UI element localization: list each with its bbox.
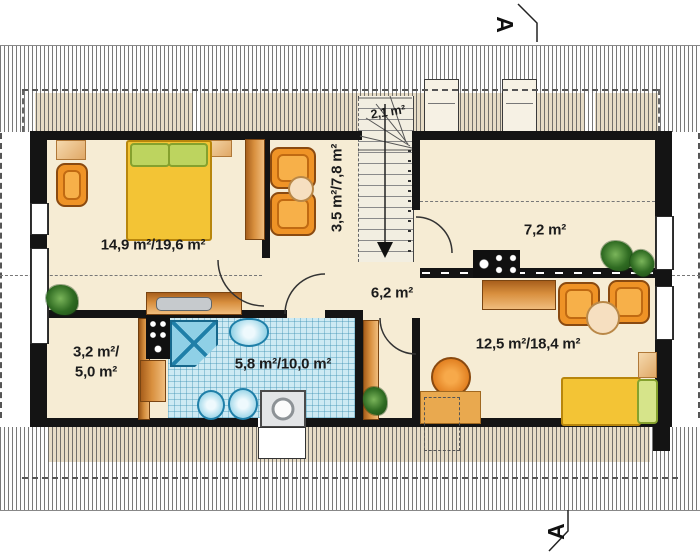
nightstand <box>638 352 657 378</box>
sideboard <box>482 280 556 310</box>
round-table <box>586 301 620 335</box>
section-marker-top: A <box>491 16 518 33</box>
pillow <box>168 143 208 167</box>
wardrobe <box>245 139 265 240</box>
roof-dashed-line-bottom <box>22 477 678 479</box>
window-right <box>655 216 674 270</box>
desk-under-eaves-dashed <box>424 397 460 451</box>
room-label-room2: 12,5 m²/18,4 m² <box>476 336 581 353</box>
stove-oven-icon <box>146 315 170 359</box>
side-table <box>288 176 314 202</box>
room-label-storage-line1: 3,2 m²/ <box>73 344 119 361</box>
wall-left <box>30 233 47 248</box>
room-label-storage-line2: 5,0 m² <box>75 363 117 380</box>
room-label-hall: 6,2 m² <box>371 285 413 302</box>
skylight-window <box>424 79 459 132</box>
toilet-icon <box>197 390 225 420</box>
window-right <box>655 286 674 340</box>
wall-top <box>412 131 672 140</box>
eaves-dashed-edge <box>658 89 660 132</box>
single-bed <box>561 377 641 426</box>
plant-icon <box>363 387 387 415</box>
chimney-block <box>653 427 670 451</box>
section-flag-top <box>518 4 537 42</box>
wall-top <box>30 131 362 140</box>
roof-ridge-dashed-line <box>22 89 658 91</box>
duct-box <box>258 427 306 459</box>
counter-sink <box>156 297 212 311</box>
room-label-storage: 3,2 m²/ 5,0 m² <box>51 343 141 382</box>
wall-room2-left <box>412 318 420 427</box>
room-label-bathroom: 5,8 m²/10,0 m² <box>235 356 331 373</box>
knee-wall-dashed-line <box>420 201 655 202</box>
room-label-bedroom: 14,9 m²/19,6 m² <box>101 237 206 254</box>
washbasin-icon <box>229 318 269 347</box>
wall-right <box>655 131 672 216</box>
wall-right <box>655 268 672 286</box>
roof-band-top <box>0 45 700 132</box>
staircase <box>358 98 414 262</box>
wall-bath-right <box>355 318 363 418</box>
armchair <box>56 163 88 207</box>
skylight-window <box>502 79 537 132</box>
room-label-kitchen: 7,2 m² <box>524 222 566 239</box>
wall-bath-top <box>325 310 363 318</box>
floor-plan: 14,9 m²/19,6 m² 3,5 m²/7,8 m² 2,1 m² 7,2… <box>0 0 700 552</box>
pillow <box>637 379 658 424</box>
section-marker-bottom: A <box>543 523 570 540</box>
bidet-icon <box>228 388 258 420</box>
wall-stair-side <box>412 135 420 210</box>
cooktop-icon <box>473 250 520 278</box>
pillow <box>130 143 170 167</box>
wall-left <box>30 342 47 418</box>
cabinet <box>140 360 166 402</box>
roof-band-bottom <box>0 427 700 511</box>
window-left <box>30 203 49 235</box>
eaves-dashed-edge <box>22 89 24 132</box>
roof-hatching-bottom <box>0 427 700 510</box>
washing-machine-icon <box>260 390 306 428</box>
knee-wall-dashed-line <box>672 275 700 276</box>
wall-left <box>30 131 47 203</box>
room-label-sitting: 3,5 m²/7,8 m² <box>329 144 346 232</box>
nightstand <box>56 140 86 160</box>
